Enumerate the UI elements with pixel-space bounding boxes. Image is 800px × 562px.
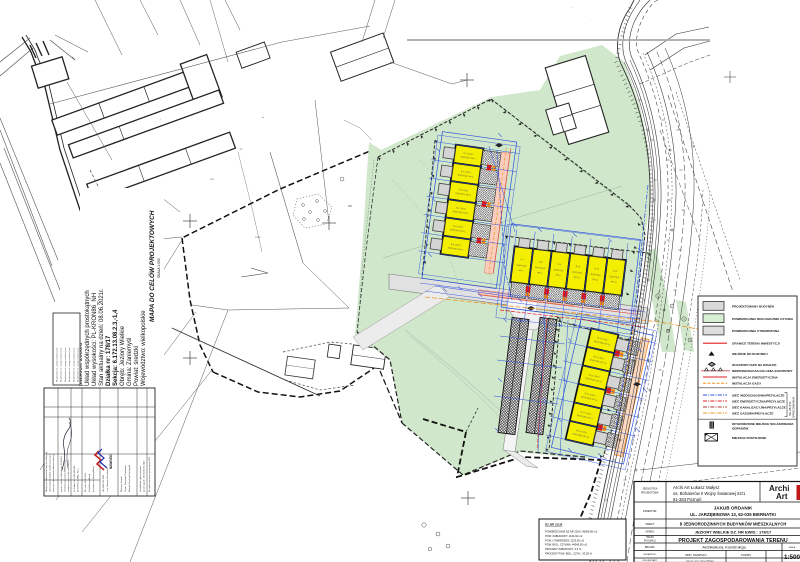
svg-text:OBIEKT:: OBIEKT: [645, 523, 655, 526]
svg-text:Art: Art [776, 492, 788, 501]
svg-text:Niniejszym dokumentem map do c: Niniejszym dokumentem map do celów proj. [45, 451, 48, 492]
svg-text:Gmina: Zaniemyśl: Gmina: Zaniemyśl [127, 338, 133, 386]
svg-text:SKALA: SKALA [789, 546, 796, 549]
svg-text:PROCENT ZABUDOWY: 2,5 %: PROCENT ZABUDOWY: 2,5 % [545, 547, 582, 551]
svg-text:Na podstawie art. ustawy o ewi: Na podstawie art. ustawy o ewidencji xxx [56, 348, 59, 382]
svg-text:61-100 Środa Wlkp. biuro: 61-100 Środa Wlkp. biuro [77, 468, 80, 492]
svg-text:8 JEDNORODZINNYCH BUDYNKÓW MIE: 8 JEDNORODZINNYCH BUDYNKÓW MIESZKALNYCH [680, 522, 787, 527]
svg-text:dr: dr [262, 116, 264, 119]
svg-text:Województwo: wielkopolskie: Województwo: wielkopolskie [141, 310, 147, 386]
svg-text:NAWGEO: NAWGEO [109, 454, 113, 469]
svg-text:Nr zgłoszenia pracy geodezyjne: Nr zgłoszenia pracy geodezyjnej 2021 [148, 456, 151, 492]
svg-text:PROJEKTOWA:: PROJEKTOWA: [641, 492, 659, 495]
svg-text:WEJŚCIE DO BUDYNKU: WEJŚCIE DO BUDYNKU [732, 351, 769, 356]
svg-text:Na podstawie art. ustawy o ewi: Na podstawie art. ustawy o ewidencji xxx [64, 348, 67, 382]
svg-text:JAKUB ORDANIK: JAKUB ORDANIK [714, 506, 753, 511]
svg-text:L4B: L4B [691, 143, 696, 148]
svg-text:178/3: 178/3 [255, 237, 261, 239]
svg-text:INWESTOR:: INWESTOR: [643, 510, 657, 513]
svg-text:INSTALACJA GAZU: INSTALACJA GAZU [732, 382, 762, 386]
svg-text:UL. JARZĘBINOWA 13, 62-035 BIE: UL. JARZĘBINOWA 13, 62-035 BIERNATKI [690, 512, 776, 517]
svg-text:PROJEKTOWANY BUDYNEK: PROJEKTOWANY BUDYNEK [732, 305, 775, 309]
svg-text:GK.6640.992.2021: GK.6640.992.2021 [103, 474, 105, 492]
svg-text:1:500: 1:500 [784, 554, 800, 561]
svg-text:SIEĆ WODOCIĄGOWA/PRZYŁĄCZE: SIEĆ WODOCIĄGOWA/PRZYŁĄCZE [732, 392, 785, 397]
svg-text:pozytywny wynik weryfikacji: pozytywny wynik weryfikacji [92, 466, 95, 492]
svg-text:mgr inż. Łukasz Kafelski upr.: mgr inż. Łukasz Kafelski upr. 123/2021 [60, 455, 63, 492]
svg-text:Sekcja: 6.172.13.08.2.3,-1,4: Sekcja: 6.172.13.08.2.3,-1,4 [113, 309, 119, 386]
svg-text:POWIERZCHNIA UTWARDZONA: POWIERZCHNIA UTWARDZONA [732, 329, 780, 333]
svg-text:JEDNOSTKA: JEDNOSTKA [642, 488, 657, 491]
svg-text:POWIERZCHNIA DZ.NR 211/6: 450: POWIERZCHNIA DZ.NR 211/6: 45069,50 m2 [545, 530, 598, 534]
svg-text:POW. BIOL. CZYNNA: 44546,50 m: POW. BIOL. CZYNNA: 44546,50 m2 [545, 543, 588, 547]
svg-text:Działka nr: 178/17: Działka nr: 178/17 [106, 335, 112, 386]
svg-text:os. Bohaterów II Wojny Światow: os. Bohaterów II Wojny Światowej 62/1 [673, 491, 746, 496]
svg-text:ul. Krótka 5 tel. 600-000-000: ul. Krótka 5 tel. 600-000-000 [73, 465, 76, 492]
svg-text:Na podstawie art. ustawy o ewi: Na podstawie art. ustawy o ewidencji xxx [72, 348, 75, 382]
svg-text:POW. ZABUDOWY: 1144,92 m2: POW. ZABUDOWY: 1144,92 m2 [545, 534, 583, 538]
svg-text:Stan aktualny na dzień: 08.06.: Stan aktualny na dzień: 08.06.2021r. [99, 288, 105, 386]
svg-text:z up. Starosty Średzkiego: z up. Starosty Średzkiego [106, 467, 109, 492]
svg-text:Obręb: Jeziory Wielkie: Obręb: Jeziory Wielkie [120, 325, 126, 386]
svg-text:Na podstawie art. ustawy o ewi: Na podstawie art. ustawy o ewidencji xxx [60, 348, 63, 382]
svg-text:MAPA DO CELÓW PROJEKTOWYCH: MAPA DO CELÓW PROJEKTOWYCH [147, 210, 156, 322]
svg-text:BRANŻA:: BRANŻA: [645, 546, 656, 549]
svg-text:Wolsztyn Zespół: Wolsztyn Zespół [120, 476, 123, 492]
svg-text:PROCENT POW. BIOL. CZYN.: 93,: PROCENT POW. BIOL. CZYN.: 93,25 % [545, 552, 593, 556]
svg-text:61-383 Poznań: 61-383 Poznań [673, 497, 702, 502]
svg-text:DZ.NR 211/6: DZ.NR 211/6 [545, 523, 563, 527]
svg-text:i klauzulowym, których wyniki: i klauzulowym, których wyniki geodezyjne [49, 453, 52, 492]
svg-text:WYGRODZONE MIEJSCE SKŁADOWANIA: WYGRODZONE MIEJSCE SKŁADOWANIA [732, 422, 794, 426]
svg-text:Układ współrzędnych prostokątn: Układ współrzędnych prostokątnych [85, 290, 91, 386]
svg-text:Na podstawie art. ustawy o ewi: Na podstawie art. ustawy o ewidencji xxx [77, 348, 80, 382]
svg-text:SIEĆ KANALIZACYJNA/PRZYŁĄCZE: SIEĆ KANALIZACYJNA/PRZYŁĄCZE [732, 404, 786, 409]
svg-text:Protokół weryfikacji: Protokół weryfikacji [88, 474, 91, 492]
svg-text:MIEJSCE POSTOJOWE: MIEJSCE POSTOJOWE [732, 436, 766, 440]
svg-text:RYSUNKU:: RYSUNKU: [644, 540, 657, 543]
svg-text:ADRES:: ADRES: [646, 531, 655, 534]
svg-text:JEZIORY WIELKIE DZ. NR EWID.:: JEZIORY WIELKIE DZ. NR EWID.: 178/17 [695, 529, 772, 534]
svg-text:ODPADÓW: ODPADÓW [732, 426, 748, 431]
svg-text:Wydział Geodezji i Kartografii: Wydział Geodezji i Kartografii [128, 464, 131, 492]
svg-text:WJAZD/WYJAZD NA DZIAŁKĘ: WJAZD/WYJAZD NA DZIAŁKĘ [732, 363, 776, 367]
svg-text:POWIERZCHNIA BIOLOGICZNIE CZYN: POWIERZCHNIA BIOLOGICZNIE CZYNNA [732, 317, 794, 321]
svg-text:Identyfikator zgłoszenia prac: Identyfikator zgłoszenia prac [139, 466, 142, 492]
svg-text:Organ: Starostwo Powiatowe: Organ: Starostwo Powiatowe [124, 464, 127, 492]
svg-text:POW. UTWARDZEŃ: 2223,50 m2: POW. UTWARDZEŃ: 2223,50 m2 [545, 538, 585, 542]
svg-text:Archi Art Łukasz Małysz: Archi Art Łukasz Małysz [673, 485, 720, 490]
svg-text:NIEPRZEKRACZALNA LINIA ZABUDOW: NIEPRZEKRACZALNA LINIA ZABUDOWY [732, 369, 794, 373]
svg-text:SIEĆ GAZOWA/PRZYŁĄCZE: SIEĆ GAZOWA/PRZYŁĄCZE [732, 410, 773, 415]
svg-text:SKALA 1:500: SKALA 1:500 [157, 258, 161, 278]
svg-text:Na podstawie art. ustawy o ewi: Na podstawie art. ustawy o ewidencji xxx [68, 348, 71, 382]
svg-text:Architektura, Konstrukcja: Architektura, Konstrukcja [702, 545, 746, 550]
svg-text:OPRACOWANIEM: OPRACOWANIEM [793, 397, 796, 418]
svg-text:PODPIS: PODPIS [741, 553, 751, 557]
svg-text:INSTALACJA ENERGETYCZNA: INSTALACJA ENERGETYCZNA [732, 375, 778, 379]
svg-text:zamieszczonych w bazach danych: zamieszczonych w bazach danych [68, 459, 70, 492]
svg-text:geodezyjnych: GK.6640.992.2021: geodezyjnych: GK.6640.992.2021 [144, 460, 146, 492]
svg-text:SIEĆ ENERGETYCZNA/PRZYŁĄCZE: SIEĆ ENERGETYCZNA/PRZYŁĄCZE [732, 398, 785, 403]
svg-text:dotyczące opracowania dokument: dotyczące opracowania dokumentacji tej [52, 454, 55, 492]
svg-text:Powiat: średzki: Powiat: średzki [134, 346, 140, 386]
svg-text:SPRAWDZIŁ:: SPRAWDZIŁ: [643, 553, 657, 556]
svg-text:Układ wysokości: PL-KRON86_NH: Układ wysokości: PL-KRON86_NH [92, 293, 98, 386]
svg-text:IMIĘ I NAZWISKO: IMIĘ I NAZWISKO [685, 553, 706, 557]
svg-text:PROJEKT ZAGOSPODAROWANIA TEREN: PROJEKT ZAGOSPODAROWANIA TERENU [678, 538, 787, 544]
svg-text:GRANICE TERENU INWESTYCJI: GRANICE TERENU INWESTYCJI [732, 342, 780, 346]
svg-text:W z dniu 15.06.2021: W z dniu 15.06.2021 [85, 472, 87, 492]
